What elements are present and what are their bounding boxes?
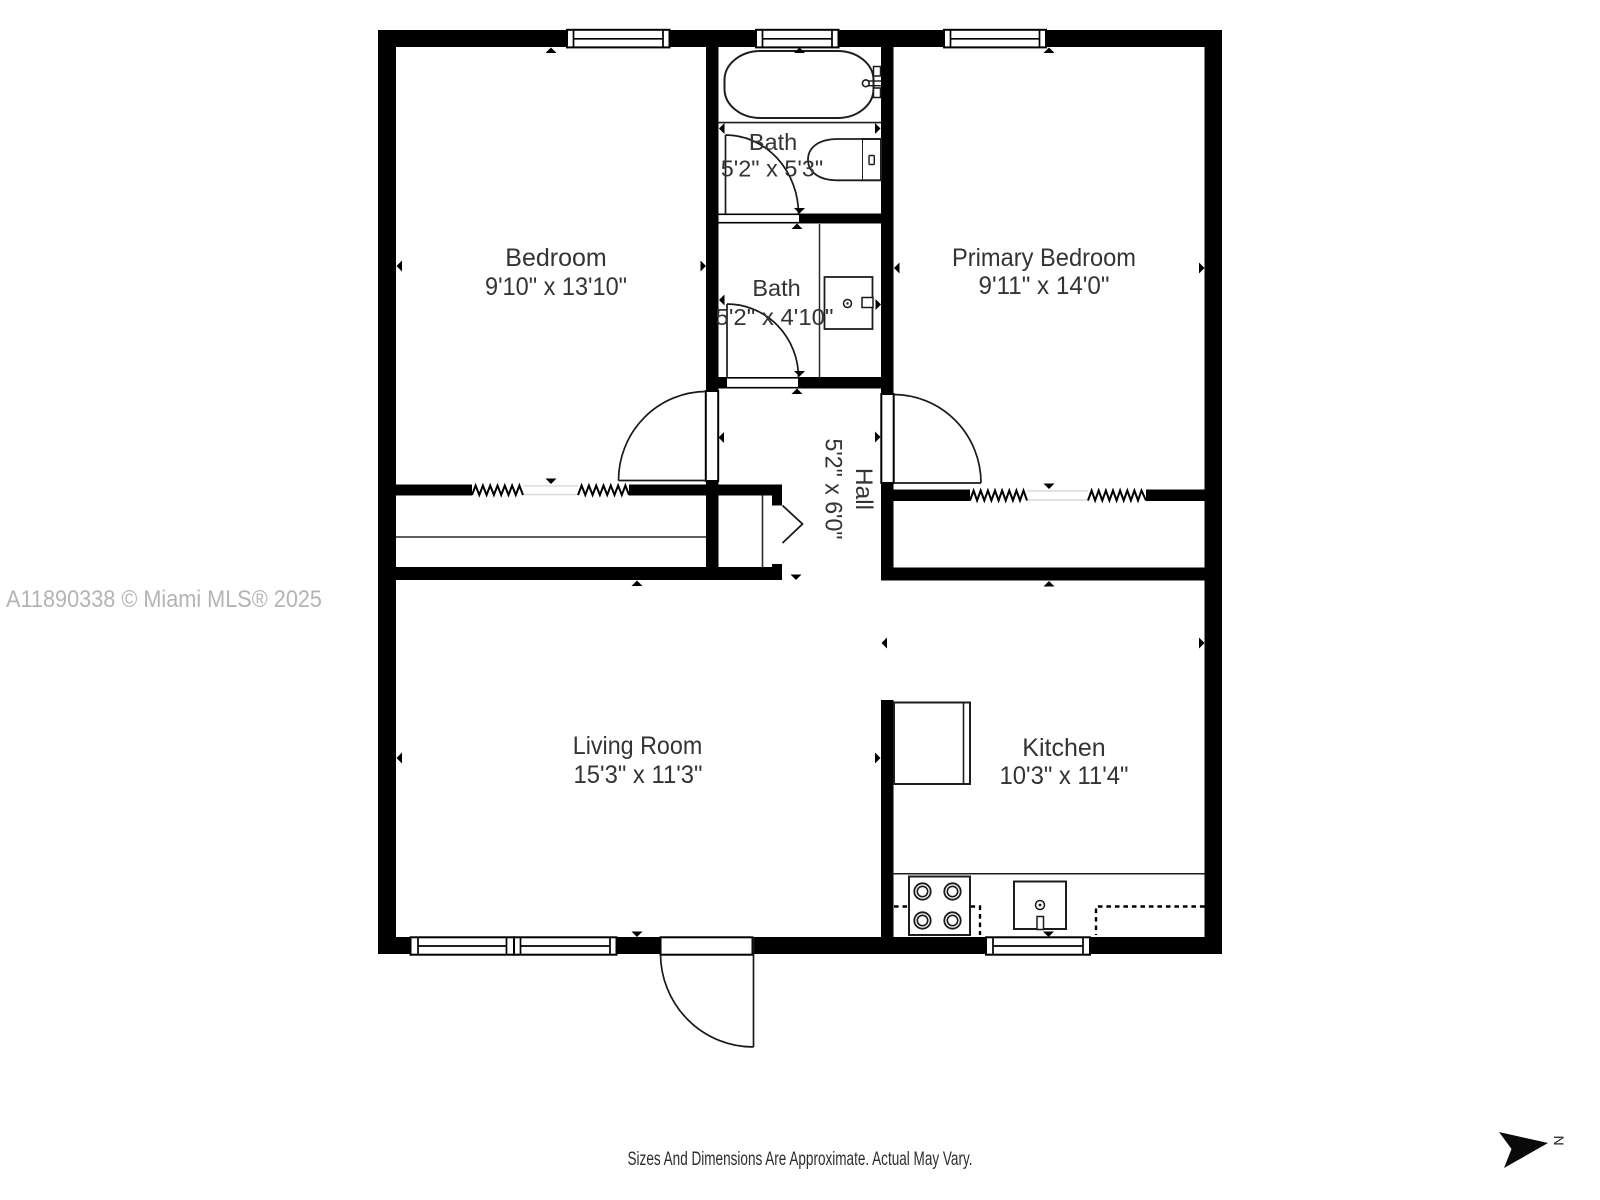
svg-text:Sizes And Dimensions Are Appro: Sizes And Dimensions Are Approximate. Ac… [628, 1148, 973, 1170]
svg-text:Hall: Hall [850, 468, 877, 510]
svg-text:5'2" x 5'3": 5'2" x 5'3" [721, 156, 824, 182]
svg-text:5'2" x 6'0": 5'2" x 6'0" [820, 439, 847, 540]
svg-text:A11890338 © Miami MLS® 2025: A11890338 © Miami MLS® 2025 [6, 586, 322, 613]
svg-text:Bedroom: Bedroom [505, 244, 606, 272]
svg-text:Kitchen: Kitchen [1022, 734, 1105, 762]
svg-text:Primary Bedroom: Primary Bedroom [952, 244, 1136, 272]
svg-text:15'3" x 11'3": 15'3" x 11'3" [574, 761, 703, 789]
svg-text:N: N [1551, 1135, 1567, 1145]
svg-text:9'11" x 14'0": 9'11" x 14'0" [979, 272, 1110, 300]
svg-text:9'10" x 13'10": 9'10" x 13'10" [485, 273, 627, 301]
svg-text:10'3" x 11'4": 10'3" x 11'4" [1000, 762, 1129, 790]
svg-text:Bath: Bath [752, 275, 800, 301]
svg-text:5'2" x 4'10": 5'2" x 4'10" [716, 304, 834, 330]
svg-text:Living Room: Living Room [573, 732, 703, 760]
svg-text:Bath: Bath [749, 129, 797, 155]
